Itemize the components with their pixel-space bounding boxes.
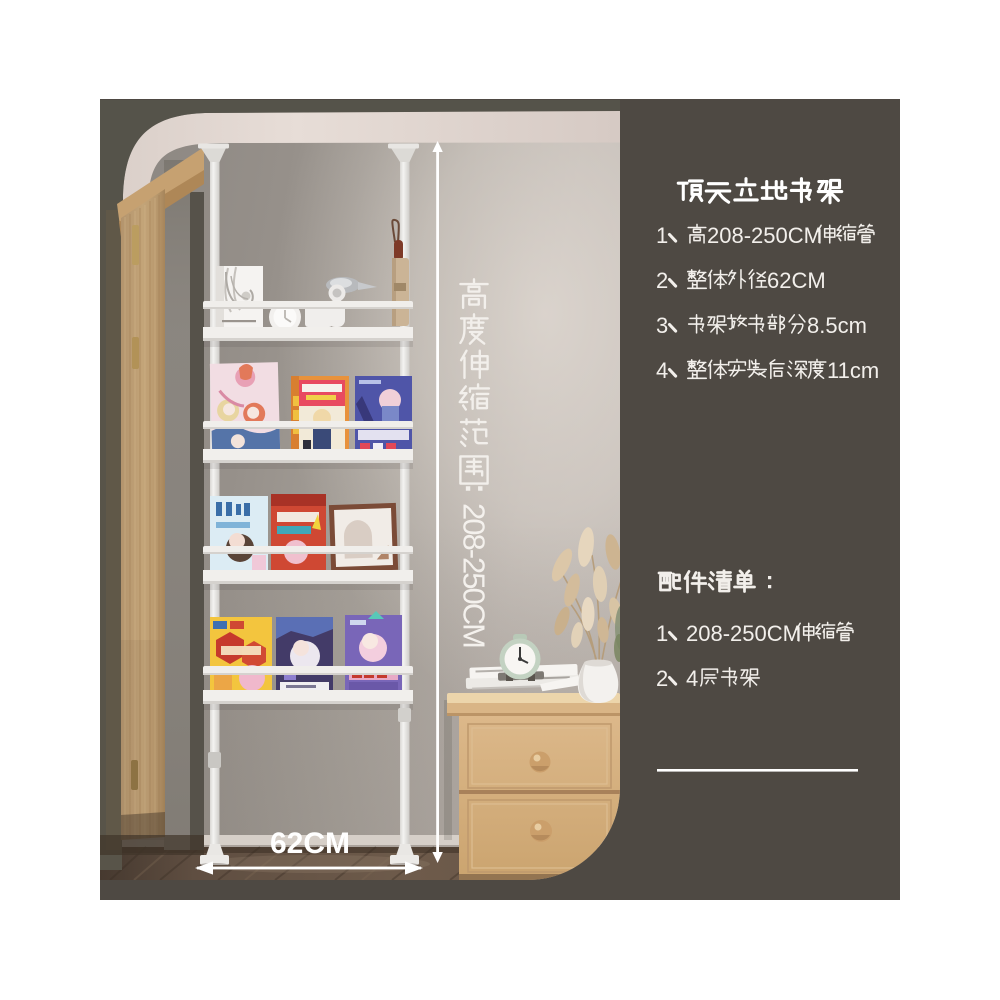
svg-text:2: 2 (656, 666, 668, 691)
svg-text:3: 3 (656, 313, 668, 338)
svg-text:208-250CM: 208-250CM (707, 223, 822, 248)
svg-text:1: 1 (656, 621, 668, 646)
svg-text:208-250CM: 208-250CM (686, 621, 801, 646)
svg-text:4: 4 (686, 666, 698, 691)
svg-text:11cm: 11cm (827, 358, 879, 383)
svg-text:8.5cm: 8.5cm (807, 313, 867, 338)
svg-text:4: 4 (656, 358, 668, 383)
svg-text:1: 1 (656, 223, 668, 248)
svg-text:2: 2 (656, 268, 668, 293)
svg-text:62CM: 62CM (767, 268, 826, 293)
